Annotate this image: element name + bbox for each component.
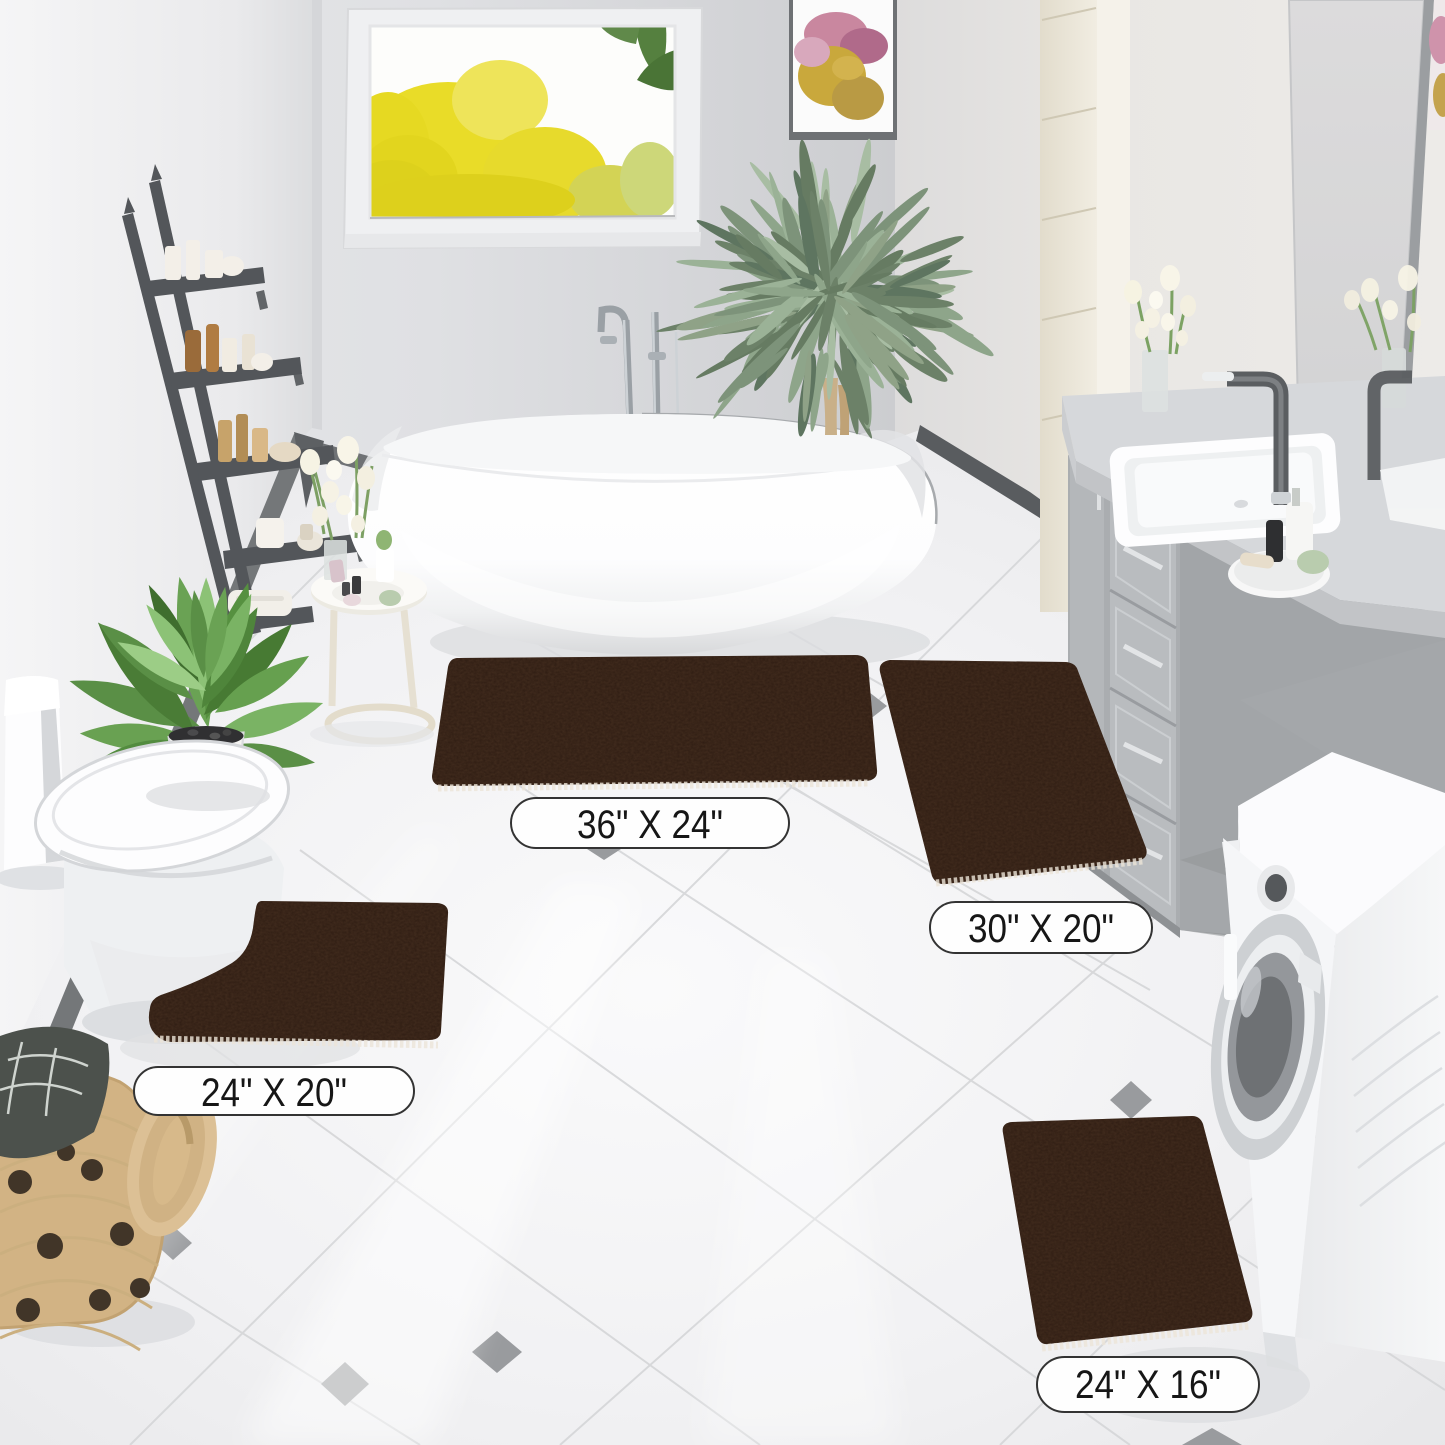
svg-text:24" X 20": 24" X 20"	[201, 1071, 347, 1115]
svg-text:24" X 16": 24" X 16"	[1075, 1363, 1221, 1407]
svg-text:36" X 24": 36" X 24"	[577, 803, 723, 847]
svg-text:30" X 20": 30" X 20"	[968, 907, 1114, 951]
